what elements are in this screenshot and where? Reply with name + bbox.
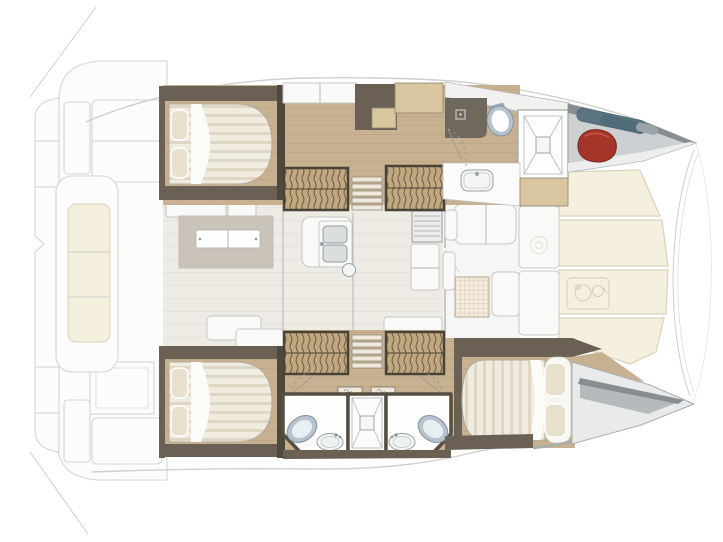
basin-faucet [334, 433, 337, 436]
forward-bench-4 [492, 272, 520, 316]
head-shower-cubicle [518, 110, 568, 180]
shower-drain-square [360, 416, 374, 430]
stbd-companionway-steps [284, 332, 444, 374]
stbd-hull-top-wall [163, 346, 285, 359]
starboard-aft-cabin-bed [169, 362, 272, 442]
bow-outer-curve [693, 144, 711, 402]
foredeck-cushion-1 [559, 170, 660, 216]
forward-bench-3 [443, 252, 455, 290]
foredeck-panel-2 [519, 271, 559, 335]
basin-faucet [391, 436, 394, 439]
galley-round-sink [343, 264, 356, 277]
forward-table-grid [455, 277, 489, 317]
cockpit-bench-cushion [68, 204, 110, 342]
pillow [171, 368, 188, 398]
steps-ladder [352, 177, 382, 210]
pillow [545, 363, 566, 396]
galley-sink-bowl-2 [323, 245, 347, 262]
vanity-faucet [475, 172, 479, 176]
aft-side-locker-top [64, 102, 90, 174]
salon-table-handle-1 [199, 238, 202, 241]
aft-deck-box-bottom [92, 418, 162, 464]
port-cabinet-tan [395, 83, 443, 113]
pillow [171, 406, 188, 436]
steps-ladder [352, 335, 382, 368]
shower-tray-drain-dot [459, 113, 461, 115]
pillow [171, 148, 188, 178]
starboard-central-shower [348, 394, 386, 452]
shower-drain-square [536, 137, 550, 153]
galley-faucet [320, 242, 324, 246]
floor-plan-drawing [0, 0, 723, 542]
port-aft-cabin-bed [169, 104, 272, 184]
fridge [411, 244, 439, 290]
foredeck-edge-curve-1 [673, 150, 694, 396]
bathrooms-base-wall [283, 450, 451, 459]
port-hull-top-wall [163, 86, 283, 101]
forward-bench-2 [445, 210, 457, 240]
salon-table-handle-2 [255, 238, 258, 241]
galley-sink-bowl-1 [323, 226, 347, 243]
starboard-bathroom-left [282, 394, 348, 452]
washbasin-inner [393, 437, 411, 448]
basin-faucet [339, 436, 342, 439]
basin-faucet [394, 433, 397, 436]
port-hull-bottom-wall [163, 186, 285, 200]
port-bow-locker [568, 104, 696, 172]
catamaran-floor-plan [0, 0, 723, 542]
shower-tray [445, 98, 487, 138]
stbd-hull-aft-cap [159, 346, 165, 458]
swim-platform [35, 98, 59, 452]
cabin-bottom-wall [445, 434, 533, 450]
stbd-hull-bottom-wall [163, 444, 285, 457]
port-hull-aft-cap [159, 86, 165, 200]
starboard-bathroom-right [386, 394, 453, 452]
aft-cockpit [30, 7, 167, 534]
foredeck-cushion-2 [559, 220, 668, 266]
washbasin-inner [321, 437, 339, 448]
forward-bench-1 [454, 204, 516, 244]
head-floor-block [520, 178, 568, 206]
pillow [545, 404, 566, 437]
aft-side-locker-bottom [64, 400, 90, 462]
pillow [171, 110, 188, 140]
port-cabinet-dark-inner [372, 108, 396, 128]
cabin-left-wall [454, 338, 462, 440]
foredeck-edge-curve-2 [678, 154, 698, 392]
